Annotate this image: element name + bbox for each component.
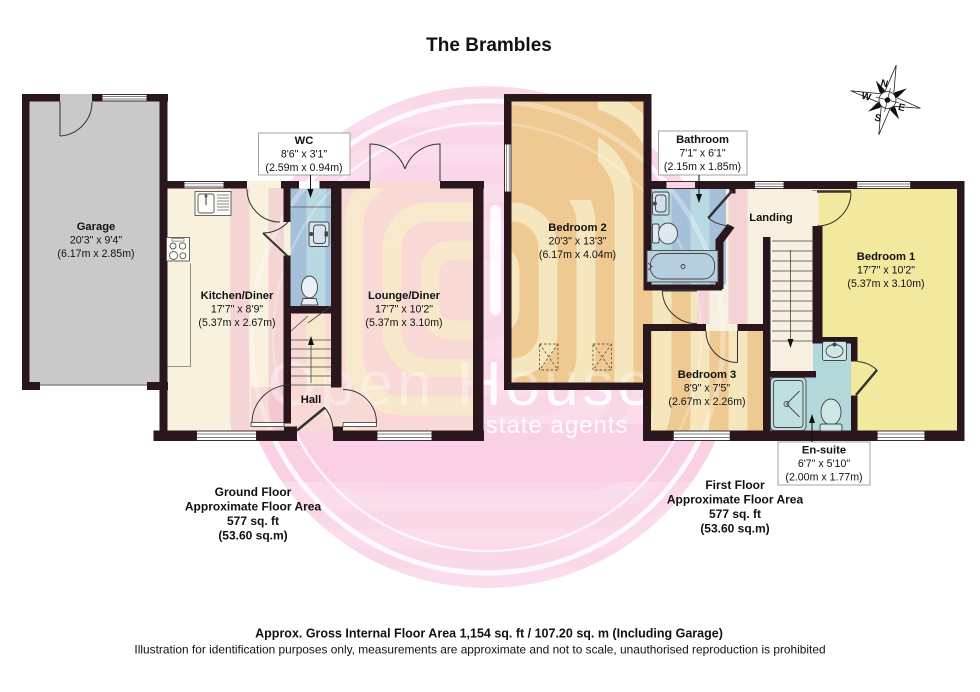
svg-text:20'3" x 13'3": 20'3" x 13'3" — [548, 236, 606, 248]
svg-text:Lounge/Diner: Lounge/Diner — [368, 290, 441, 302]
svg-text:(5.37m x 2.67m): (5.37m x 2.67m) — [198, 317, 275, 329]
svg-text:estate agents: estate agents — [471, 412, 628, 439]
svg-text:20'3" x 9'4": 20'3" x 9'4" — [70, 235, 122, 247]
svg-text:En-suite: En-suite — [802, 445, 846, 457]
svg-text:Bedroom 3: Bedroom 3 — [678, 369, 736, 381]
svg-text:17'7" x 10'2": 17'7" x 10'2" — [375, 304, 433, 316]
svg-text:Kitchen/Diner: Kitchen/Diner — [201, 290, 274, 302]
svg-text:(6.17m x 2.85m): (6.17m x 2.85m) — [57, 248, 134, 260]
svg-text:577 sq. ft: 577 sq. ft — [227, 514, 279, 528]
svg-text:(2.00m x 1.77m): (2.00m x 1.77m) — [785, 472, 862, 484]
svg-text:First Floor: First Floor — [705, 478, 765, 492]
svg-text:WC: WC — [295, 135, 314, 147]
svg-text:Bathroom: Bathroom — [676, 134, 729, 146]
svg-text:Bedroom 2: Bedroom 2 — [548, 222, 606, 234]
svg-text:(2.15m x 1.85m): (2.15m x 1.85m) — [664, 161, 741, 173]
svg-text:Approximate Floor Area: Approximate Floor Area — [667, 493, 804, 507]
svg-text:8'6" x 3'1": 8'6" x 3'1" — [281, 149, 328, 161]
svg-text:(5.37m x 3.10m): (5.37m x 3.10m) — [365, 317, 442, 329]
svg-text:8'9" x 7'5": 8'9" x 7'5" — [684, 383, 731, 395]
svg-text:Bedroom 1: Bedroom 1 — [857, 251, 915, 263]
svg-text:Approx. Gross Internal Floor A: Approx. Gross Internal Floor Area 1,154 … — [255, 627, 723, 641]
svg-text:Ground Floor: Ground Floor — [215, 485, 292, 499]
svg-text:Garage: Garage — [77, 221, 116, 233]
svg-text:17'7" x 8'9": 17'7" x 8'9" — [211, 304, 263, 316]
svg-text:7'1" x 6'1": 7'1" x 6'1" — [679, 148, 726, 160]
svg-text:6'7" x 5'10": 6'7" x 5'10" — [798, 458, 850, 470]
svg-text:Landing: Landing — [749, 212, 793, 224]
svg-text:Hall: Hall — [301, 394, 322, 406]
svg-text:(2.59m x 0.94m): (2.59m x 0.94m) — [265, 162, 342, 174]
svg-text:577 sq. ft: 577 sq. ft — [709, 507, 761, 521]
svg-text:Approximate Floor Area: Approximate Floor Area — [185, 500, 322, 514]
svg-text:(6.17m x 4.04m): (6.17m x 4.04m) — [539, 249, 616, 261]
svg-text:The Brambles: The Brambles — [426, 35, 552, 56]
svg-text:(53.60 sq.m): (53.60 sq.m) — [218, 529, 287, 543]
svg-text:17'7" x 10'2": 17'7" x 10'2" — [857, 265, 915, 277]
svg-text:(53.60 sq.m): (53.60 sq.m) — [700, 522, 769, 536]
svg-text:Illustration for identificatio: Illustration for identification purposes… — [134, 643, 825, 657]
svg-text:(5.37m x 3.10m): (5.37m x 3.10m) — [847, 278, 924, 290]
svg-text:(2.67m x 2.26m): (2.67m x 2.26m) — [668, 396, 745, 408]
